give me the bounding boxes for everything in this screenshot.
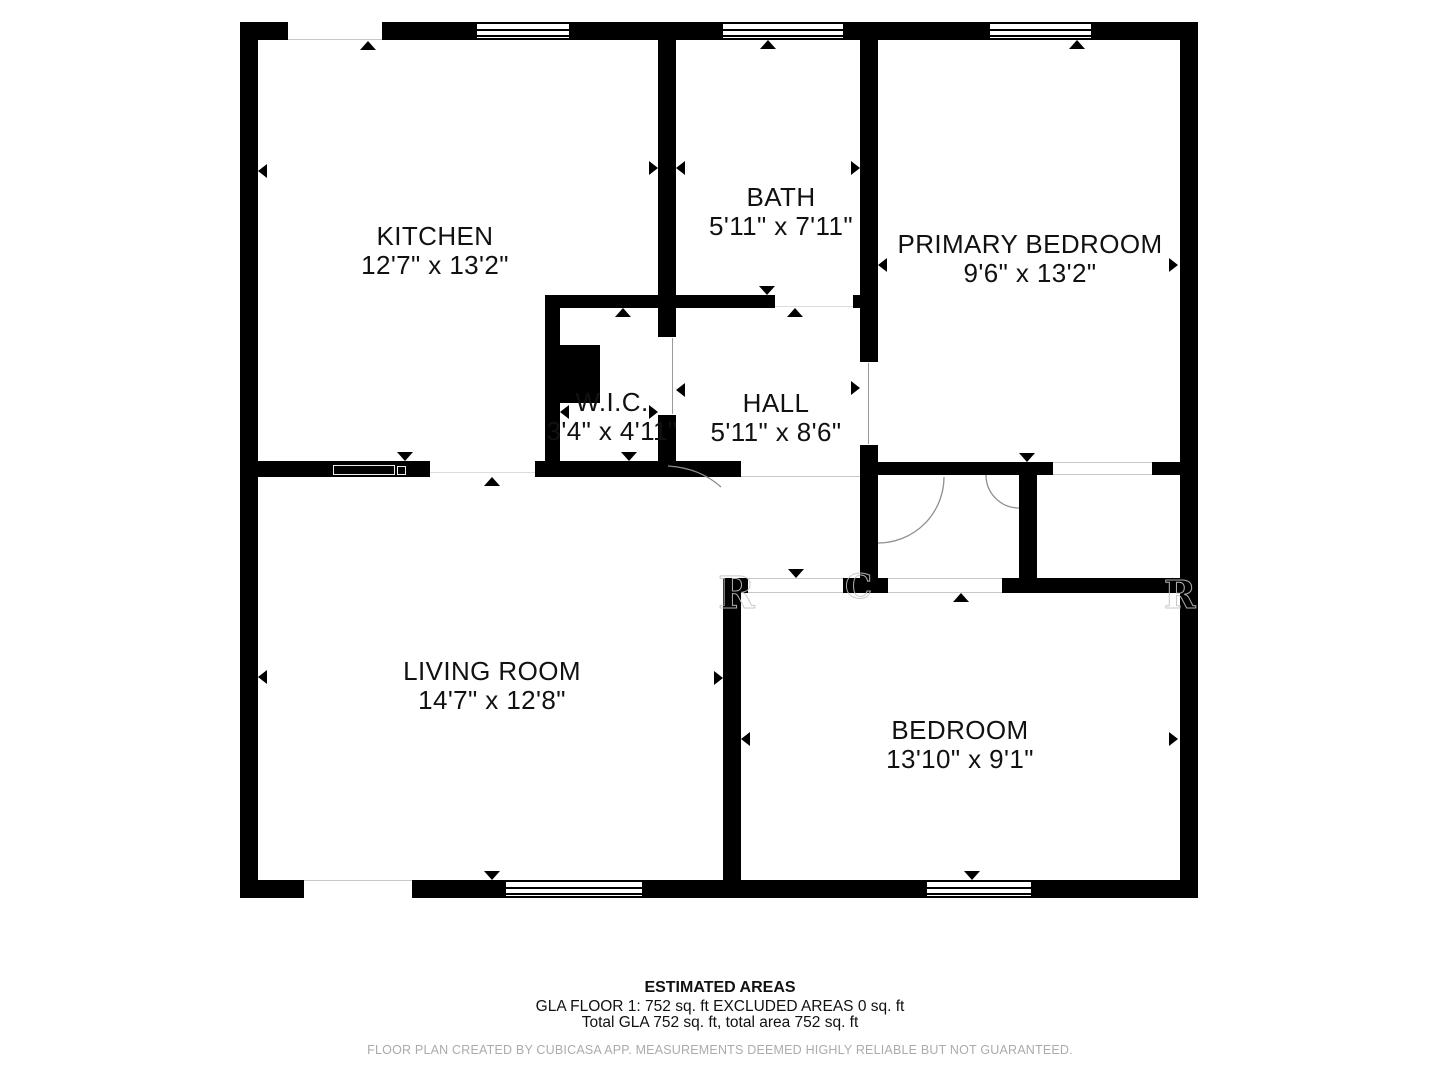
room-name: HALL bbox=[710, 389, 841, 418]
opening-marker-icon bbox=[484, 477, 500, 486]
opening-marker-icon bbox=[953, 593, 969, 602]
pocket-door-symbol bbox=[333, 465, 395, 475]
room-boundary-line bbox=[741, 476, 860, 477]
estimated-areas-title: ESTIMATED AREAS bbox=[0, 979, 1440, 997]
opening-marker-icon bbox=[649, 161, 658, 175]
room-label-bath: BATH 5'11" x 7'11" bbox=[709, 183, 853, 241]
opening-marker-icon bbox=[397, 452, 413, 461]
window bbox=[504, 880, 644, 898]
opening-marker-icon bbox=[484, 871, 500, 880]
opening-marker-icon bbox=[741, 732, 750, 746]
total-gla-line: Total GLA 752 sq. ft, total area 752 sq.… bbox=[0, 1014, 1440, 1032]
room-name: LIVING ROOM bbox=[403, 657, 581, 686]
room-name: PRIMARY BEDROOM bbox=[897, 230, 1162, 259]
opening-marker-icon bbox=[759, 286, 775, 295]
room-dimensions: 5'11" x 8'6" bbox=[710, 418, 841, 447]
room-dimensions: 5'11" x 7'11" bbox=[709, 212, 853, 241]
opening-marker-icon bbox=[258, 670, 267, 684]
wall bbox=[723, 578, 741, 880]
wall bbox=[860, 40, 878, 578]
wall bbox=[1180, 22, 1198, 898]
opening-marker-icon bbox=[621, 452, 637, 461]
opening-marker-icon bbox=[1019, 453, 1035, 462]
watermark-fragment: R bbox=[718, 572, 755, 616]
opening-marker-icon bbox=[1169, 258, 1178, 272]
room-label-wic: W.I.C. 3'4" x 4'11" bbox=[546, 388, 677, 446]
disclaimer-text: FLOOR PLAN CREATED BY CUBICASA APP. MEAS… bbox=[0, 1043, 1440, 1057]
room-dimensions: 3'4" x 4'11" bbox=[546, 417, 677, 446]
room-dimensions: 9'6" x 13'2" bbox=[897, 259, 1162, 288]
opening-marker-icon bbox=[878, 258, 887, 272]
opening-marker-icon bbox=[788, 569, 804, 578]
opening-marker-icon bbox=[851, 381, 860, 395]
wall bbox=[545, 295, 658, 308]
opening-marker-icon bbox=[714, 671, 723, 685]
watermark-fragment: C bbox=[845, 570, 872, 604]
door-opening bbox=[430, 461, 535, 477]
closet-opening bbox=[1053, 462, 1152, 475]
opening-marker-icon bbox=[676, 161, 685, 175]
exterior-door-opening bbox=[288, 22, 382, 40]
threshold-line bbox=[775, 306, 853, 307]
opening-marker-icon bbox=[1169, 732, 1178, 746]
room-label-bedroom: BEDROOM 13'10" x 9'1" bbox=[886, 716, 1034, 774]
opening-marker-icon bbox=[787, 308, 803, 317]
door-swing-arcs bbox=[0, 0, 1440, 1080]
room-name: BEDROOM bbox=[886, 716, 1034, 745]
room-name: W.I.C. bbox=[546, 388, 677, 417]
window bbox=[925, 880, 1033, 898]
window bbox=[721, 22, 845, 40]
room-dimensions: 13'10" x 9'1" bbox=[886, 745, 1034, 774]
room-label-primary-bedroom: PRIMARY BEDROOM 9'6" x 13'2" bbox=[897, 230, 1162, 288]
floor-plan: KITCHEN 12'7" x 13'2" BATH 5'11" x 7'11"… bbox=[0, 0, 1440, 1080]
wall-opening bbox=[888, 578, 1002, 593]
opening-marker-icon bbox=[964, 871, 980, 880]
threshold-line bbox=[430, 472, 535, 473]
room-label-kitchen: KITCHEN 12'7" x 13'2" bbox=[361, 222, 509, 280]
wall bbox=[240, 22, 258, 898]
watermark-fragment: R bbox=[1164, 576, 1196, 614]
door-opening bbox=[860, 362, 878, 445]
room-label-hall: HALL 5'11" x 8'6" bbox=[710, 389, 841, 447]
wall-opening bbox=[748, 578, 843, 593]
room-name: BATH bbox=[709, 183, 853, 212]
opening-marker-icon bbox=[360, 41, 376, 50]
room-name: KITCHEN bbox=[361, 222, 509, 251]
door-leaf-line bbox=[868, 363, 869, 444]
room-dimensions: 12'7" x 13'2" bbox=[361, 251, 509, 280]
window bbox=[988, 22, 1093, 40]
opening-marker-icon bbox=[760, 40, 776, 49]
room-label-living-room: LIVING ROOM 14'7" x 12'8" bbox=[403, 657, 581, 715]
opening-marker-icon bbox=[851, 161, 860, 175]
wall bbox=[1019, 475, 1037, 593]
opening-marker-icon bbox=[615, 308, 631, 317]
room-dimensions: 14'7" x 12'8" bbox=[403, 686, 581, 715]
window bbox=[475, 22, 571, 40]
opening-marker-icon bbox=[1069, 40, 1085, 49]
pocket-door-symbol bbox=[397, 466, 406, 475]
opening-marker-icon bbox=[258, 164, 267, 178]
exterior-door-opening bbox=[304, 880, 412, 898]
